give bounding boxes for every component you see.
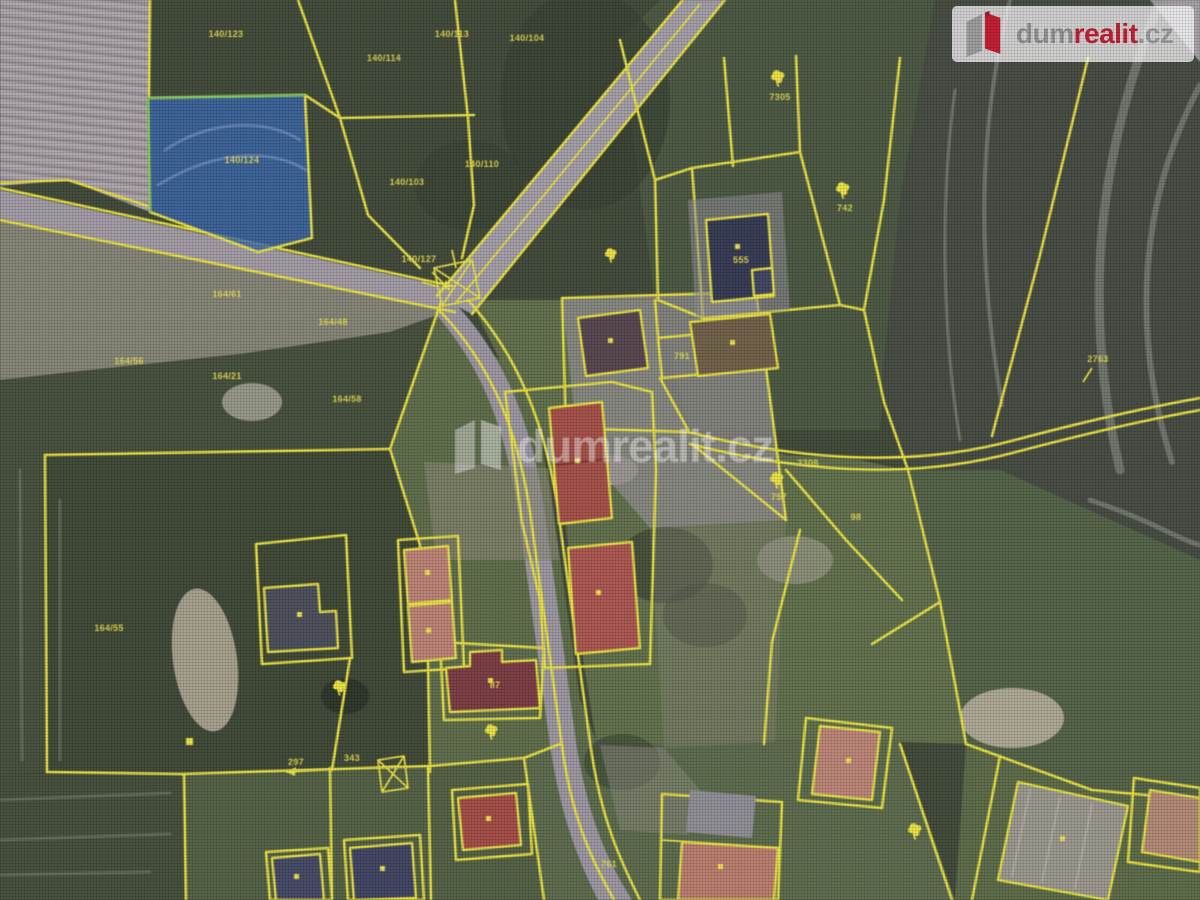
- parcel-label: 164/56: [114, 356, 143, 366]
- parcel-label: 164/58: [332, 394, 361, 404]
- parcel-label: 140/123: [209, 29, 244, 39]
- parcel-label: 140/103: [390, 177, 425, 187]
- parcel-label: 164/61: [212, 289, 241, 299]
- parcel-label: 87: [490, 680, 501, 690]
- parcel-label: 164/21: [212, 371, 241, 381]
- parcel-label: 757: [771, 492, 787, 502]
- parcel-label: 2763: [1087, 354, 1108, 364]
- parcel-label: 555: [733, 255, 749, 265]
- parcel-label: 140/104: [510, 33, 545, 43]
- parcel-label: 164/55: [94, 623, 123, 633]
- parcel-label: 2308: [797, 458, 818, 468]
- parcel-label: 140/110: [465, 159, 499, 169]
- parcel-label: 791: [674, 351, 690, 361]
- cadastral-map[interactable]: 140/123140/114140/113140/1047305140/1241…: [0, 0, 1200, 900]
- parcel-label: 140/124: [225, 155, 260, 165]
- parcel-label: 343: [344, 753, 360, 763]
- parcel-label: 140/114: [367, 53, 401, 63]
- parcel-label: 98: [851, 512, 862, 522]
- brand-logo[interactable]: dumrealit.cz: [952, 6, 1194, 62]
- parcel-label: 742: [837, 203, 853, 213]
- parcel-label: 164/48: [318, 317, 347, 327]
- parcel-label: 140/127: [402, 254, 437, 264]
- listing-map-image: 140/123140/114140/113140/1047305140/1241…: [0, 0, 1200, 900]
- brand-logo-icon: [962, 11, 1008, 57]
- parcel-label: 761: [601, 859, 617, 869]
- brand-logo-text: dumrealit.cz: [1016, 18, 1173, 50]
- parcel-label: 7305: [769, 92, 790, 102]
- parcel-label: 140/113: [435, 29, 469, 39]
- parcel-label: 297: [288, 757, 304, 767]
